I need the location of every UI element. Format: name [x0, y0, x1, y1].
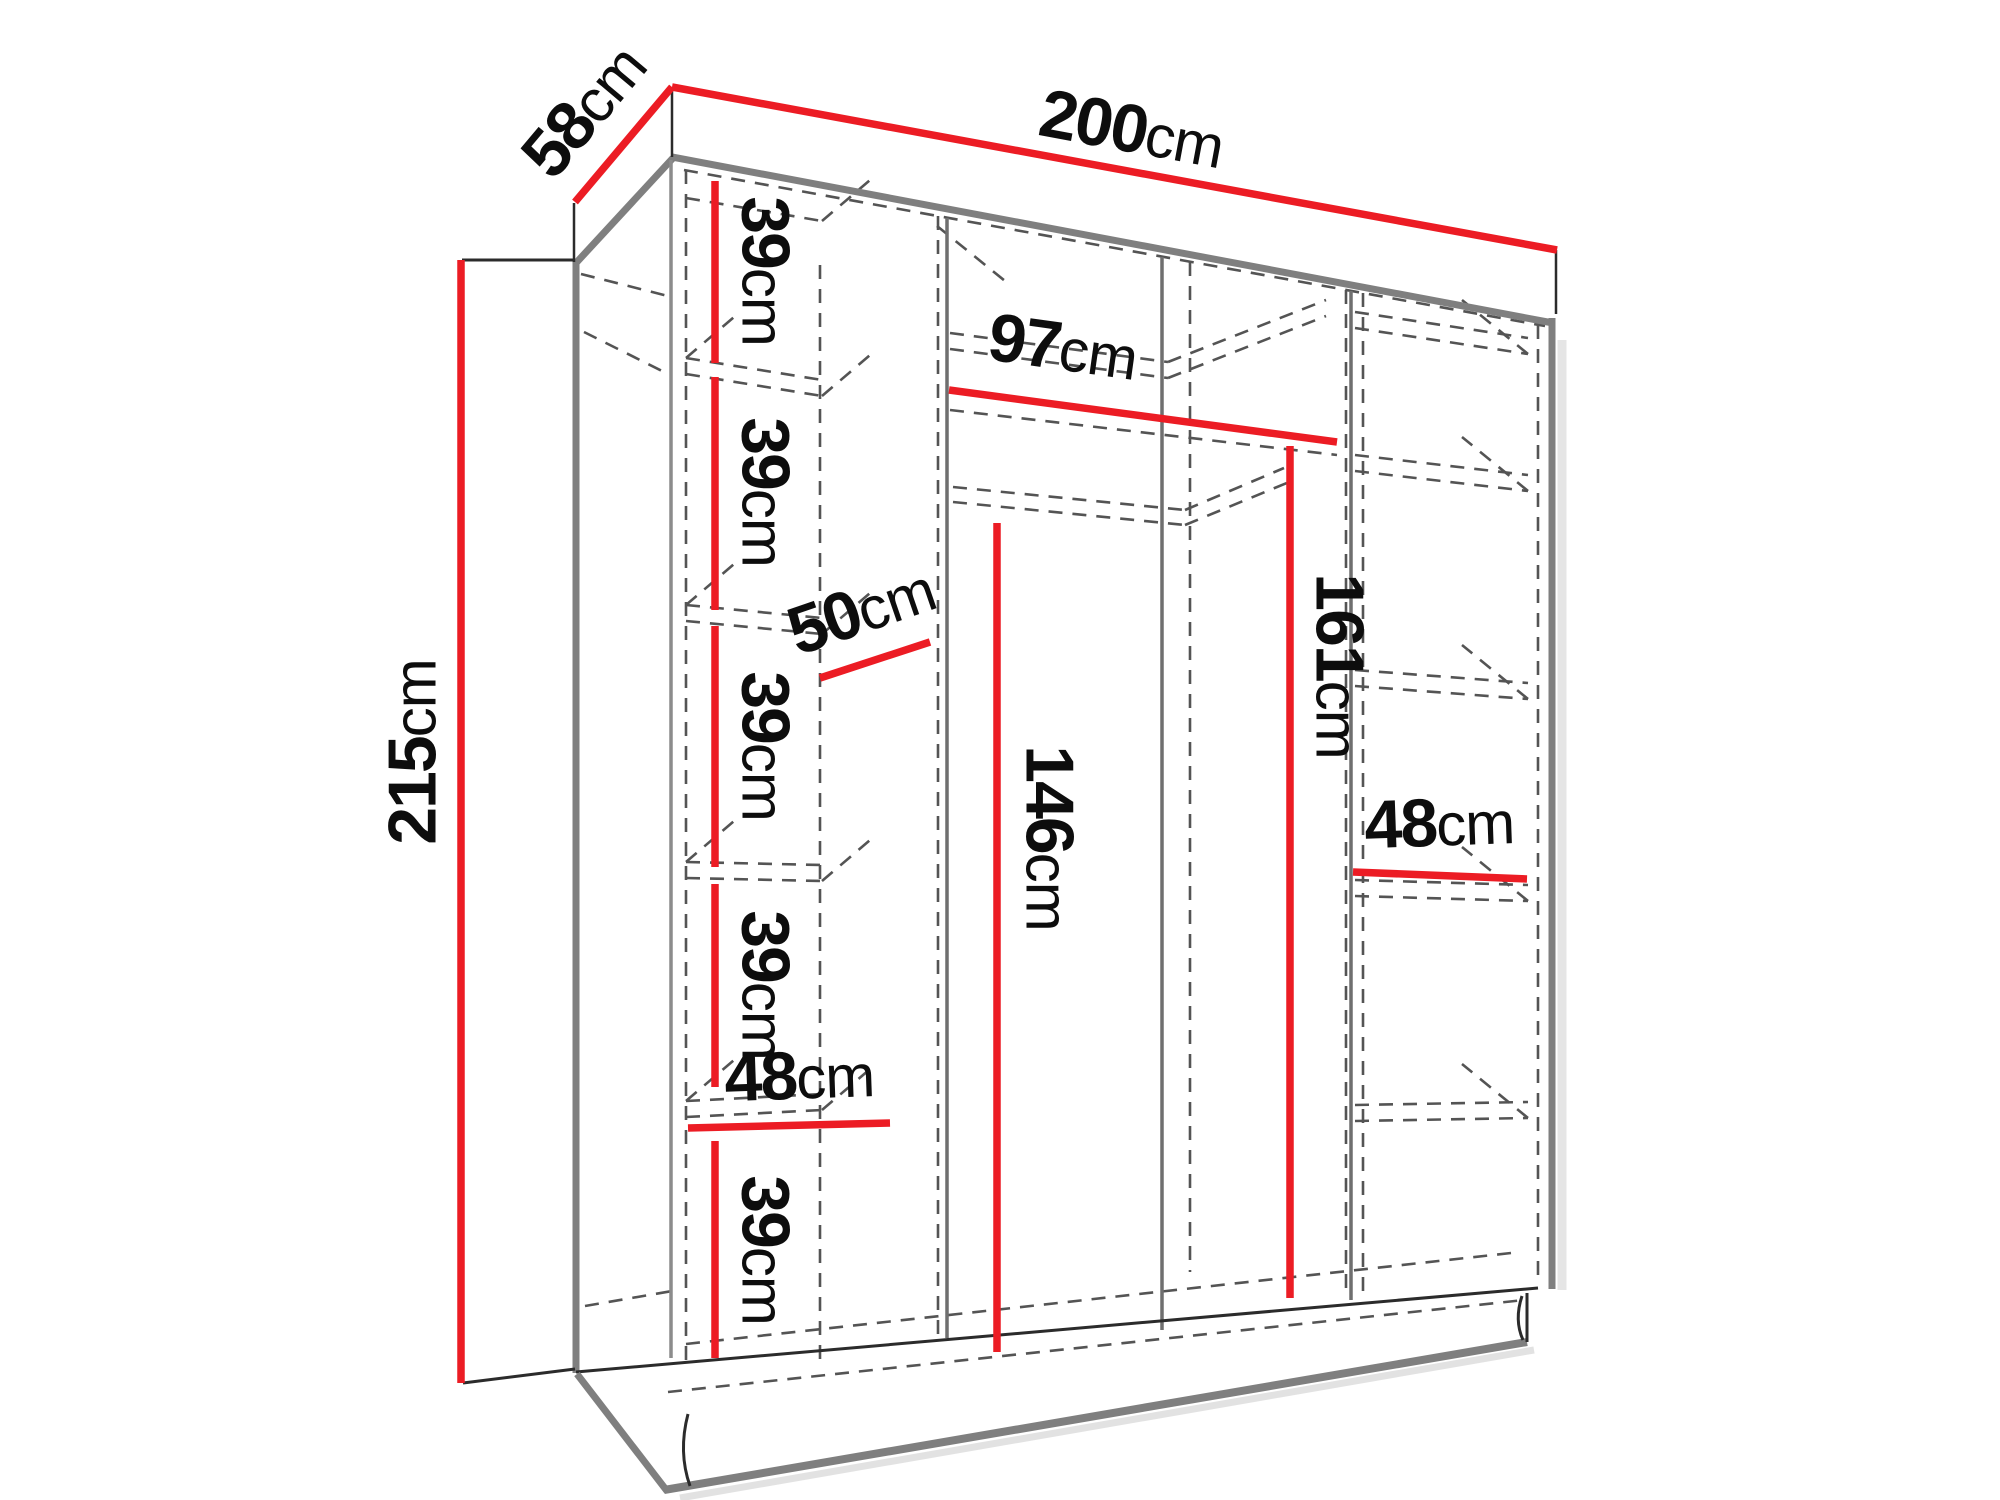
wardrobe-dimension-diagram: 58cm 200cm 215cm 39cm 39cm 39cm 39cm 39c…: [0, 0, 2000, 1500]
plinth-notch-left: [683, 1414, 690, 1486]
shelf-depth-label: 50cm: [778, 549, 944, 670]
diagram-canvas: 58cm 200cm 215cm 39cm 39cm 39cm 39cm 39c…: [0, 0, 2000, 1500]
top-left-edge: [576, 158, 673, 263]
dimension-width: 200cm: [672, 75, 1557, 250]
bottom-front-edge: [576, 1288, 1538, 1372]
dimension-hanging-height-mid: 146cm: [997, 523, 1087, 1352]
hanging-height-mid-label: 146cm: [1011, 745, 1087, 930]
dimension-hanging-width: 97cm: [949, 299, 1337, 442]
hanging-width-label: 97cm: [984, 299, 1143, 395]
dimension-left-gap-5: 39cm: [715, 1141, 803, 1358]
left-width-label: 48cm: [723, 1035, 875, 1116]
depth-label: 58cm: [506, 29, 660, 192]
plinth-bottom-edge: [664, 1342, 1527, 1490]
dimension-shelf-depth: 50cm: [778, 549, 944, 678]
width-label: 200cm: [1034, 75, 1230, 184]
dimension-left-gap-2: 39cm: [715, 377, 803, 610]
dimension-left-gap-3: 39cm: [715, 626, 803, 867]
left-gap-2-label: 39cm: [727, 417, 803, 567]
right-width-label: 48cm: [1363, 782, 1515, 863]
left-gap-1-label: 39cm: [727, 196, 803, 346]
dimension-depth: 58cm: [506, 29, 672, 202]
left-gap-5-label: 39cm: [727, 1175, 803, 1325]
height-label: 215cm: [375, 659, 451, 844]
bottom-left-corner: [577, 1374, 667, 1491]
plinth-notch-right: [1518, 1296, 1523, 1340]
dimension-right-width: 48cm: [1353, 782, 1527, 879]
dimension-height: 215cm: [375, 260, 575, 1383]
dimension-left-gap-1: 39cm: [715, 181, 803, 363]
hanging-height-right-label: 161cm: [1301, 573, 1377, 758]
left-gap-3-label: 39cm: [727, 671, 803, 821]
